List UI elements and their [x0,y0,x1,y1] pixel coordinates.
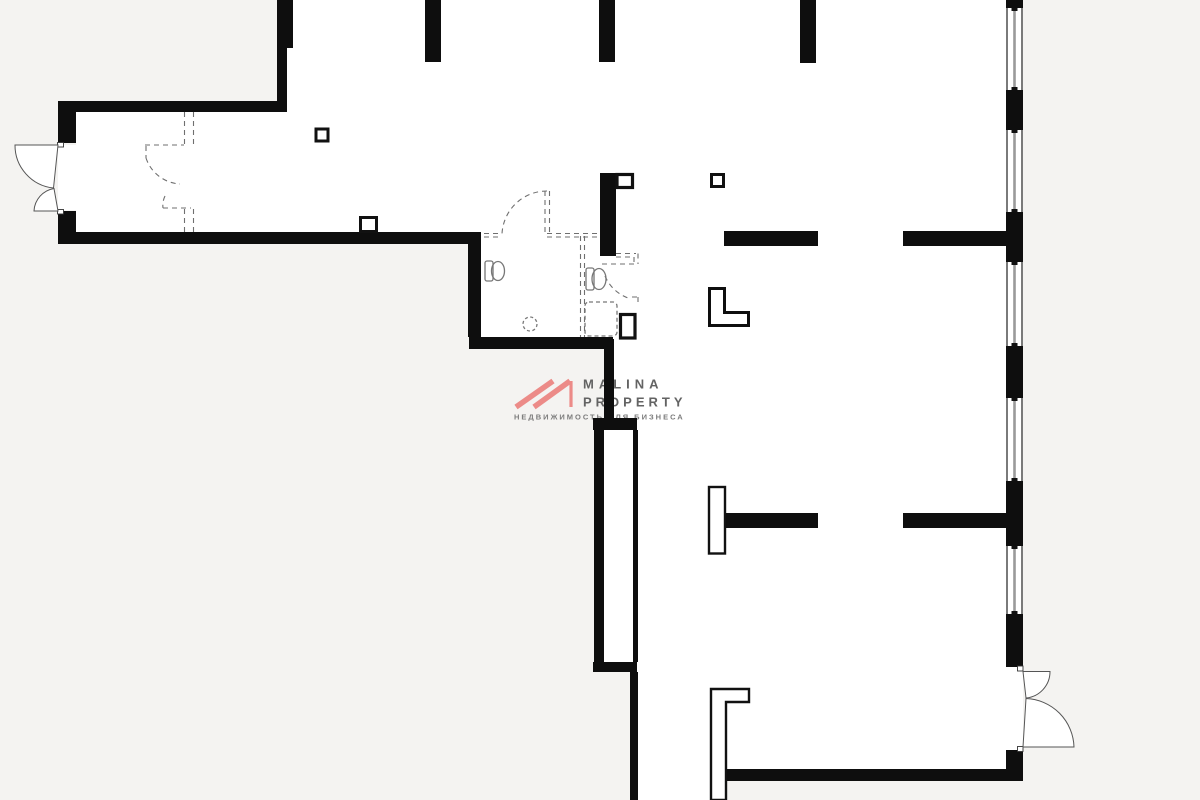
svg-text:MALINA: MALINA [583,377,664,392]
svg-text:PROPERTY: PROPERTY [583,395,687,410]
